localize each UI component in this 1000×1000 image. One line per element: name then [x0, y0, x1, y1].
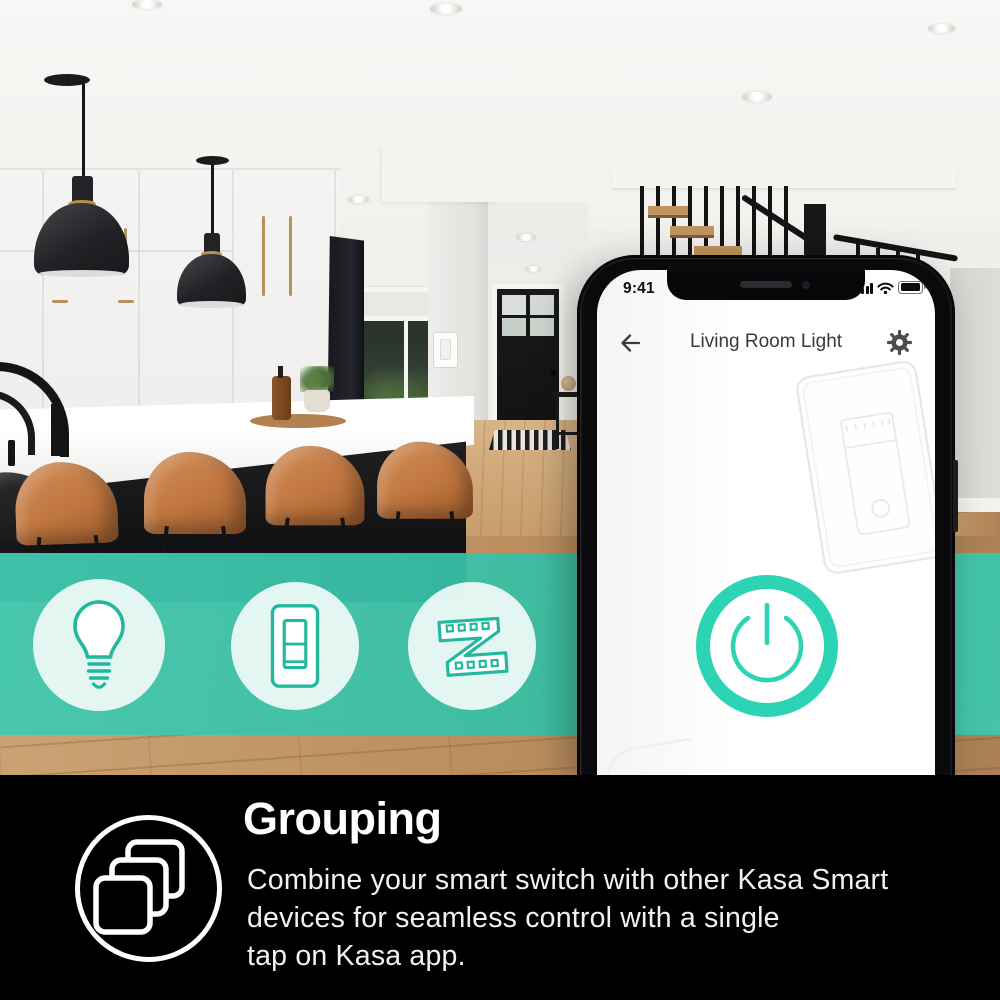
app-header: Living Room Light [597, 328, 935, 358]
feature-description-line: devices for seamless control with a sing… [247, 902, 780, 935]
banner-icon-circle [231, 582, 359, 710]
wifi-icon [877, 282, 894, 294]
lamp-cord [82, 84, 85, 180]
door-window-pane [502, 295, 526, 315]
power-button[interactable] [687, 566, 847, 726]
door-window-pane [530, 295, 554, 315]
phone-notch [667, 270, 865, 300]
stool-seat [266, 446, 365, 526]
banner-icon-circle [408, 582, 536, 710]
cabinet-handle [289, 216, 292, 296]
stair-tread [670, 226, 714, 238]
stair-fascia [612, 166, 956, 188]
phone-screen: 9:41 Living Room Light [597, 270, 935, 779]
status-bar-time: 9:41 [623, 280, 655, 298]
cellular-signal-icon [857, 283, 874, 294]
bar-stool [377, 442, 473, 557]
potted-plant [300, 366, 334, 392]
banner-icon-circle [33, 579, 165, 711]
faucet-handle [8, 440, 15, 466]
recessed-light [132, 0, 162, 9]
recessed-light [348, 196, 369, 203]
stool-seat [377, 442, 473, 519]
ceiling-beam [382, 146, 496, 202]
smart-wall-switch-icon [255, 597, 335, 695]
recessed-light [516, 234, 536, 241]
smart-bulb-icon [58, 595, 140, 695]
speaker-grille [740, 281, 792, 288]
cabinet-handle [118, 300, 134, 303]
feature-description-line: tap on Kasa app. [247, 940, 466, 973]
front-camera [802, 281, 810, 289]
stair-newel-post [804, 204, 826, 260]
recessed-light [742, 92, 772, 102]
status-bar-icons [857, 282, 924, 294]
console-leg [556, 397, 559, 449]
smartphone-mockup: 9:41 Living Room Light [577, 255, 955, 779]
cabinet-panel-line [138, 170, 140, 434]
soap-bottle [272, 376, 291, 420]
stair-baluster [672, 186, 676, 260]
stool-seat [144, 452, 246, 534]
decor-sphere [561, 376, 576, 391]
product-marketing-image: 9:41 Living Room Light [0, 0, 1000, 1000]
stair-baluster [768, 186, 772, 260]
cabinet-handle [262, 216, 265, 296]
door-window-pane [530, 318, 554, 336]
recessed-light [526, 266, 541, 272]
wooden-tray [250, 414, 346, 428]
stair-baluster [752, 186, 756, 260]
door-window-pane [502, 318, 526, 336]
door-knob [551, 370, 556, 375]
stair-baluster [640, 186, 644, 260]
feature-heading: Grouping [243, 793, 441, 845]
recessed-light [928, 24, 955, 33]
stair-baluster [656, 186, 660, 260]
feature-description-line: Combine your smart switch with other Kas… [247, 864, 888, 897]
grouping-squares-icon [70, 810, 227, 967]
soap-pump [278, 366, 283, 378]
stool-footrest [390, 542, 460, 545]
stair-baluster [688, 186, 692, 260]
stair-tread [648, 206, 688, 218]
bar-stool [266, 446, 365, 564]
gear-icon[interactable] [886, 329, 913, 356]
cabinet-handle [52, 300, 68, 303]
faint-plate-corner [605, 733, 695, 779]
battery-icon [898, 281, 923, 295]
app-title: Living Room Light [597, 331, 935, 353]
cabinet-panel-line [0, 168, 340, 170]
feature-section: Grouping Combine your smart switch with … [0, 775, 1000, 1000]
smart-switch-illustration [781, 351, 935, 592]
plant-pot [304, 390, 330, 412]
wall-light-switch-rocker [440, 339, 451, 360]
faucet-spout [51, 404, 60, 456]
stool-seat [14, 460, 119, 546]
lamp-cord [211, 163, 214, 235]
recessed-light [430, 4, 462, 14]
led-light-strip-icon [423, 597, 521, 695]
